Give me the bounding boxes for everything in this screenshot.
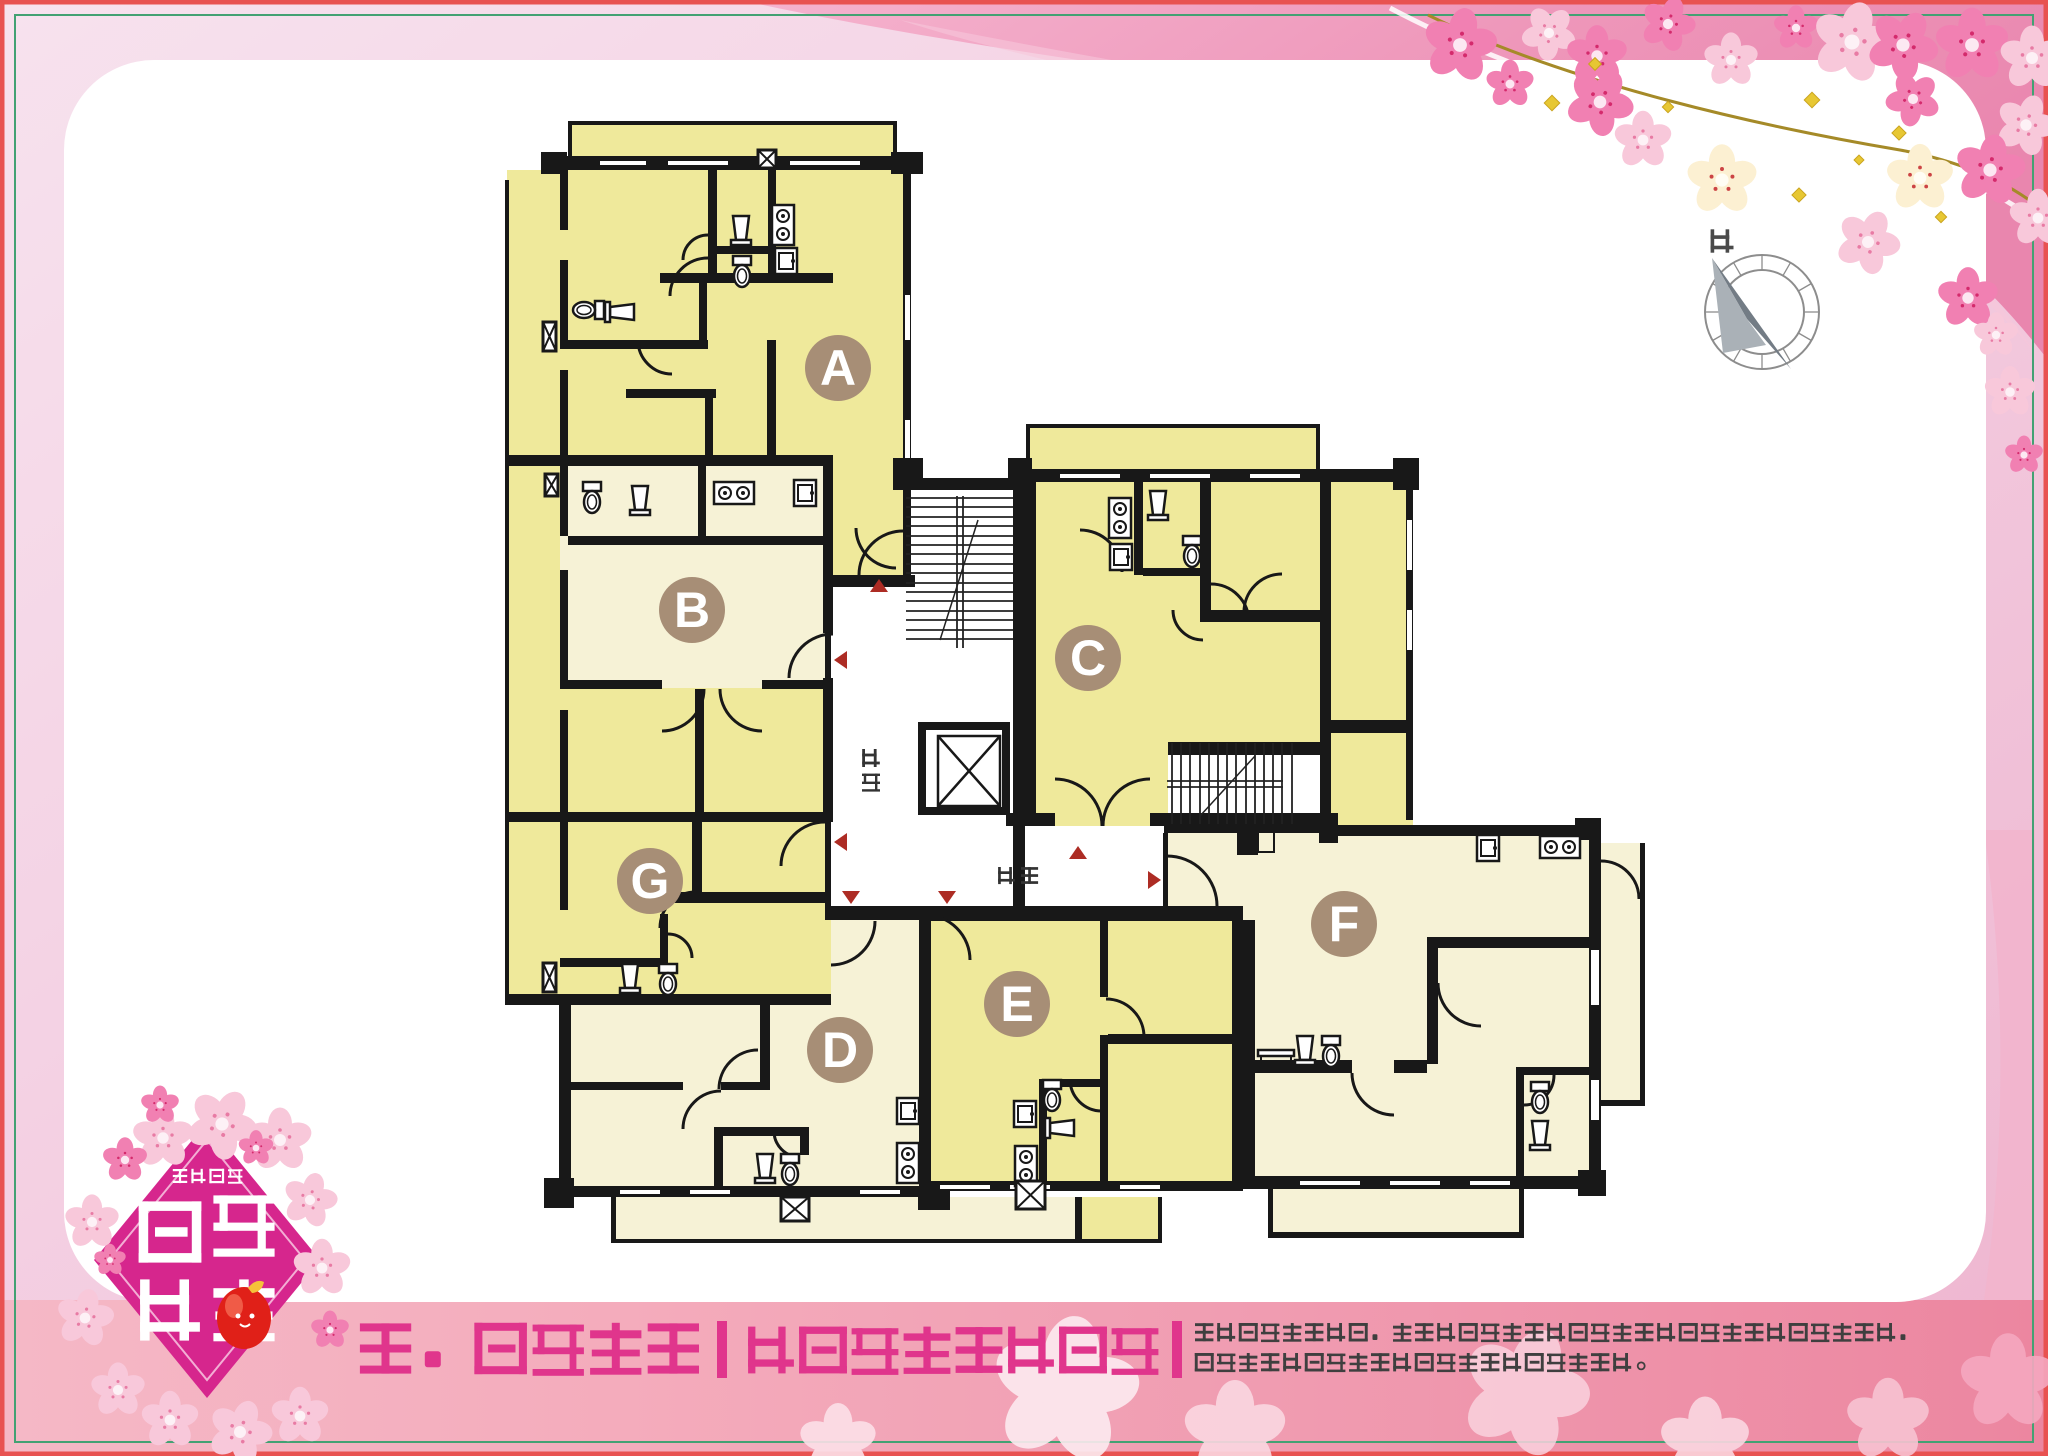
svg-text:D: D <box>822 1022 858 1078</box>
svg-text:F: F <box>1329 896 1360 952</box>
svg-text:G: G <box>631 853 670 909</box>
svg-text:A: A <box>820 340 856 396</box>
svg-text:E: E <box>1000 976 1033 1032</box>
svg-text:C: C <box>1070 630 1106 686</box>
svg-text:B: B <box>674 582 710 638</box>
